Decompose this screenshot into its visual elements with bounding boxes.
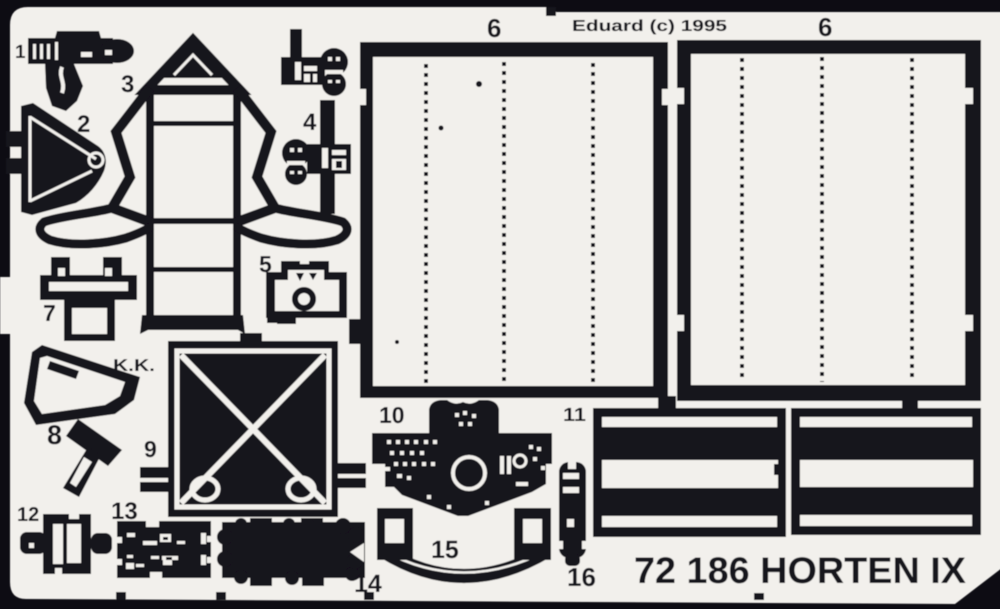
svg-text:8: 8 (47, 420, 62, 450)
svg-text:9: 9 (144, 436, 157, 462)
svg-text:10: 10 (379, 402, 405, 428)
svg-text:11: 11 (563, 405, 586, 426)
svg-text:1: 1 (15, 42, 26, 63)
svg-text:14: 14 (354, 570, 382, 598)
svg-text:K.K.: K.K. (113, 356, 155, 375)
svg-text:2: 2 (77, 111, 90, 138)
svg-text:6: 6 (487, 13, 501, 43)
svg-text:7: 7 (43, 300, 56, 326)
svg-text:5: 5 (259, 251, 272, 277)
svg-text:4: 4 (303, 109, 317, 136)
svg-text:16: 16 (567, 562, 596, 592)
svg-text:6: 6 (818, 12, 832, 42)
svg-text:15: 15 (431, 536, 459, 564)
svg-text:Eduard (c) 1995: Eduard (c) 1995 (572, 18, 727, 35)
svg-text:3: 3 (121, 71, 134, 98)
svg-text:13: 13 (111, 498, 138, 525)
svg-text:12: 12 (17, 504, 39, 526)
svg-text:72 186 HORTEN IX: 72 186 HORTEN IX (634, 550, 966, 591)
